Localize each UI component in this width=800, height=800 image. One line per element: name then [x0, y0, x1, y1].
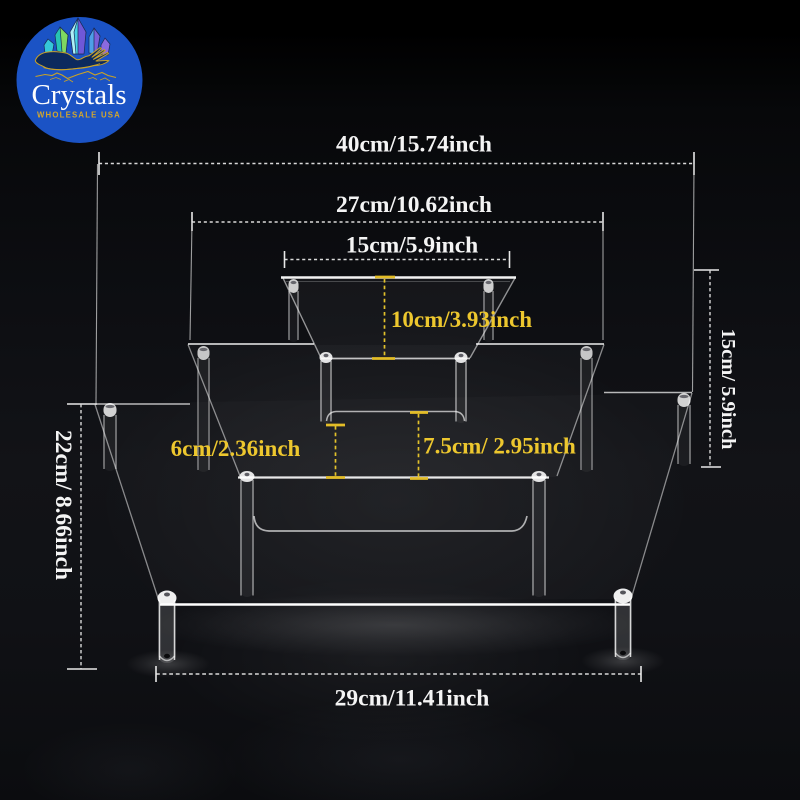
svg-text:15cm/5.9inch: 15cm/5.9inch [346, 233, 479, 259]
svg-text:Crystals: Crystals [31, 79, 126, 111]
svg-text:6cm/2.36inch: 6cm/2.36inch [171, 436, 301, 461]
svg-text:10cm/3.93inch: 10cm/3.93inch [391, 307, 532, 332]
svg-text:29cm/11.41inch: 29cm/11.41inch [335, 686, 490, 712]
svg-text:7.5cm/ 2.95inch: 7.5cm/ 2.95inch [423, 434, 576, 459]
svg-text:27cm/10.62inch: 27cm/10.62inch [336, 192, 492, 218]
svg-text:40cm/15.74inch: 40cm/15.74inch [336, 132, 492, 158]
svg-text:WHOLESALE USA: WHOLESALE USA [37, 111, 121, 120]
svg-text:22cm/ 8.66inch: 22cm/ 8.66inch [50, 430, 76, 580]
svg-text:15cm/ 5.9inch: 15cm/ 5.9inch [717, 329, 739, 450]
